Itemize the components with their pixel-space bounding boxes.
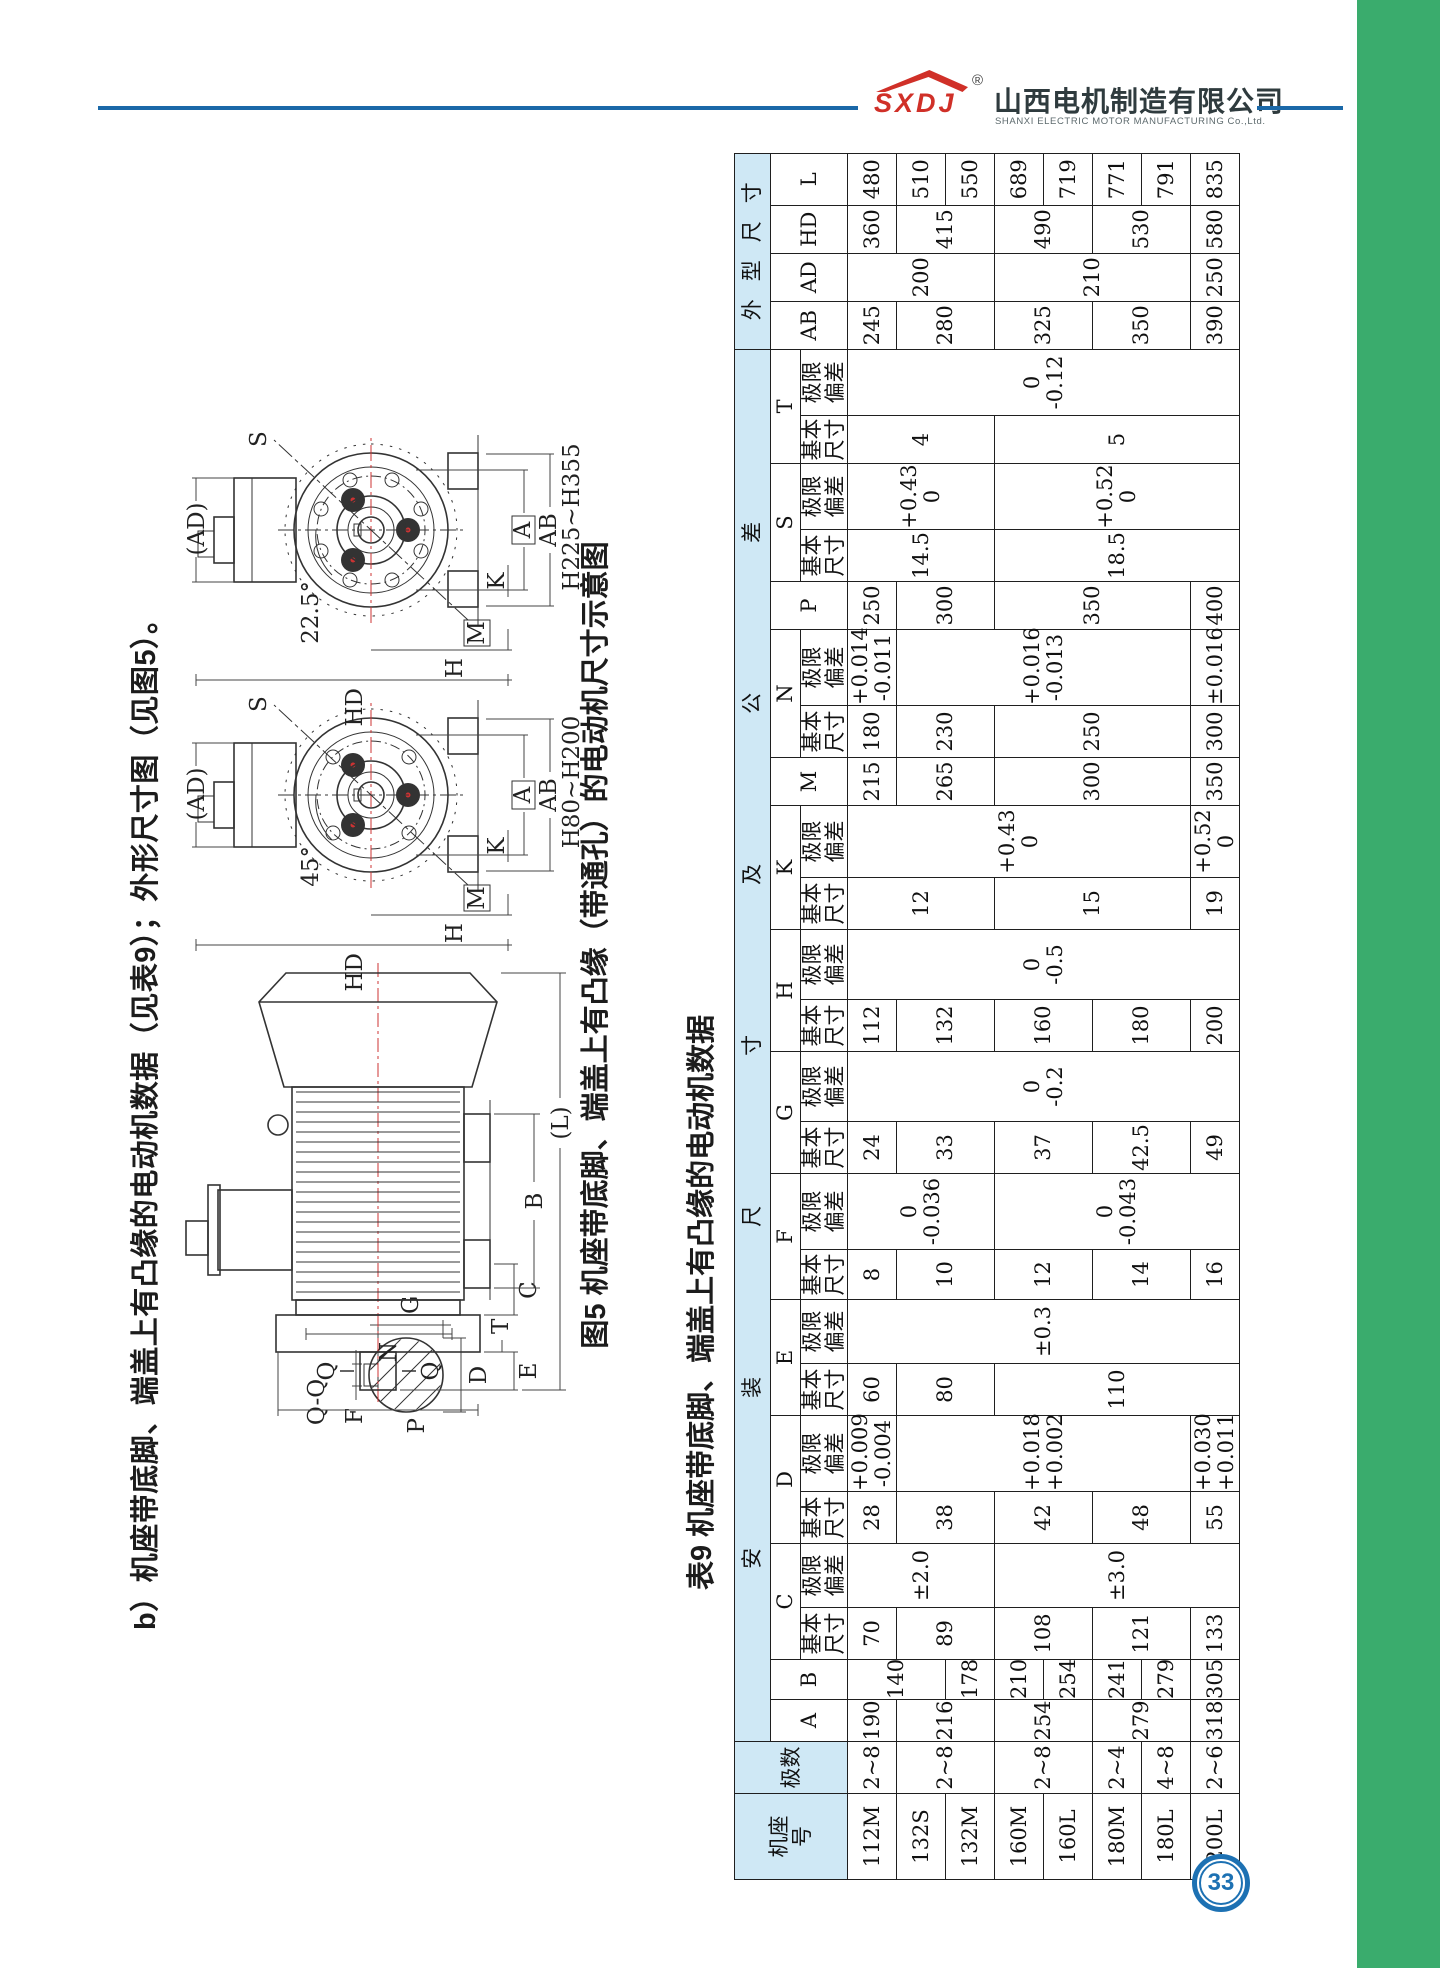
table-cell: +0.43 0 <box>848 464 995 530</box>
table-cell: 2~8 <box>995 1742 1093 1794</box>
header-rule-left <box>98 106 858 110</box>
table-cell: 160L <box>1044 1794 1093 1880</box>
table-cell: 2~6 <box>1191 1742 1240 1794</box>
table-cell: 250 <box>848 582 897 630</box>
table-cell: 160 <box>995 1000 1093 1052</box>
table-cell: 0 -0.12 <box>848 349 1240 415</box>
table-cell: 0 -0.5 <box>848 930 1240 1000</box>
table-cell: 33 <box>897 1122 995 1174</box>
table-cell: +0.52 0 <box>995 464 1240 530</box>
table-cell: 480 <box>848 153 897 205</box>
table-cell: 121 <box>1093 1608 1191 1660</box>
section-mark-q2: Q <box>418 1362 444 1381</box>
table-cell: 15 <box>995 878 1191 930</box>
table-header-cell: E <box>771 1300 801 1416</box>
end-view-large: (AD) S M 22.5° K H HD A AB H225~H355 <box>184 431 581 726</box>
table-header-cell: HD <box>771 205 848 253</box>
motor-side-view: Q Q N P E T C B (L) <box>186 960 574 1433</box>
table-cell: 350 <box>1093 301 1191 349</box>
table-cell: 42.5 <box>1093 1122 1191 1174</box>
table-header-cell: L <box>771 153 848 205</box>
dim-label-m: M <box>464 621 490 645</box>
table-cell: +0.52 0 <box>1191 806 1240 878</box>
page-number-badge: 33 <box>1192 1854 1250 1912</box>
table-cell: 550 <box>946 153 995 205</box>
angle-label-small: 45° <box>298 846 324 887</box>
table-cell: ±0.3 <box>848 1300 1240 1364</box>
dim-label-a: A <box>510 786 536 804</box>
table-header-cell: 基本 尺寸 <box>801 1608 848 1660</box>
table-cell: 0 -0.2 <box>848 1052 1240 1122</box>
end-view-small: (AD) S M 45° K H HD A AB H80~H200 <box>184 696 581 991</box>
table-row: 112M2~819014070±2.028+0.009 -0.00460±0.3… <box>848 153 897 1879</box>
table-cell: 8 <box>848 1250 897 1300</box>
table-cell: 300 <box>1191 706 1240 758</box>
table-header-cell: F <box>771 1174 801 1300</box>
table-cell: 530 <box>1093 205 1191 253</box>
table-header-cell: N <box>771 630 801 758</box>
table-cell: 89 <box>897 1608 995 1660</box>
table-header-cell: B <box>771 1660 848 1700</box>
table-cell: 160M <box>995 1794 1044 1880</box>
table-cell: 5 <box>995 416 1240 464</box>
table-header-cell: 极限 偏差 <box>801 1416 848 1492</box>
table-cell: 132M <box>946 1794 995 1880</box>
dim-label-hd: HD <box>342 953 368 992</box>
table-cell: 140 <box>848 1660 946 1700</box>
table-cell: 325 <box>995 301 1093 349</box>
table-cell: 279 <box>1142 1660 1191 1700</box>
table-cell: 791 <box>1142 153 1191 205</box>
table-cell: +0.016 -0.013 <box>897 630 1191 706</box>
table-row: 机座 号极数安装尺寸及公差外型尺寸 <box>735 153 771 1879</box>
table-row: ABCDEFGHKMNPSTABADHDL <box>771 153 801 1879</box>
table-cell: 350 <box>995 582 1191 630</box>
table-cell: 280 <box>897 301 995 349</box>
qq-title: Q-Q <box>304 1379 330 1425</box>
table-cell: 112 <box>848 1000 897 1052</box>
table-header-cell: 安装尺寸及公差 <box>735 349 771 1741</box>
dim-label-s: S <box>246 431 272 447</box>
table-cell: 250 <box>1191 253 1240 301</box>
table-cell: 200 <box>848 253 995 301</box>
table-cell: 241 <box>1093 1660 1142 1700</box>
green-side-bar <box>1357 0 1440 1968</box>
table-cell: 70 <box>848 1608 897 1660</box>
table-header-cell: 极限 偏差 <box>801 1300 848 1364</box>
company-name-en: SHANXI ELECTRIC MOTOR MANUFACTURING Co.,… <box>995 116 1266 127</box>
table-header-cell: 基本 尺寸 <box>801 878 848 930</box>
dim-label-b: B <box>522 1193 548 1210</box>
spec-table: 机座 号极数安装尺寸及公差外型尺寸ABCDEFGHKMNPSTABADHDL基本… <box>734 153 1240 1880</box>
table-cell: 28 <box>848 1492 897 1544</box>
table-cell: 80 <box>897 1364 995 1416</box>
table-header-cell: 极限 偏差 <box>801 930 848 1000</box>
table-cell: 2~4 <box>1093 1742 1142 1794</box>
dim-label-n: N <box>376 1342 402 1362</box>
table-cell: +0.009 -0.004 <box>848 1416 897 1492</box>
table-cell: 400 <box>1191 582 1240 630</box>
spec-table-head: 机座 号极数安装尺寸及公差外型尺寸ABCDEFGHKMNPSTABADHDL基本… <box>735 153 848 1879</box>
table-cell: 4~8 <box>1142 1742 1191 1794</box>
table-header-cell: 极限 偏差 <box>801 464 848 530</box>
table-cell: 835 <box>1191 153 1240 205</box>
table-cell: 490 <box>995 205 1093 253</box>
table-header-cell: 外型尺寸 <box>735 153 771 349</box>
dim-label-a: A <box>510 521 536 539</box>
dim-label-g: G <box>398 1296 424 1314</box>
dim-label-s: S <box>246 696 272 712</box>
table-header-cell: 基本 尺寸 <box>801 1250 848 1300</box>
table-header-cell: AB <box>771 301 848 349</box>
table-header-cell: 极限 偏差 <box>801 1174 848 1250</box>
table-cell: 49 <box>1191 1122 1240 1174</box>
table-cell: 350 <box>1191 758 1240 806</box>
table-cell: 19 <box>1191 878 1240 930</box>
table-cell: 210 <box>995 253 1191 301</box>
table-cell: ±0.016 <box>1191 630 1240 706</box>
table-cell: 38 <box>897 1492 995 1544</box>
table-header-cell: C <box>771 1544 801 1660</box>
table-header-cell: K <box>771 806 801 930</box>
table-cell: 254 <box>995 1700 1093 1742</box>
table-header-cell: G <box>771 1052 801 1174</box>
table-cell: 37 <box>995 1122 1093 1174</box>
company-logo: SXDJ ® <box>872 62 992 118</box>
table-cell: 112M <box>848 1794 897 1880</box>
table-header-cell: 极限 偏差 <box>801 630 848 706</box>
motor-dimension-figure: Q-Q F G D Q Q <box>156 290 581 1460</box>
table-cell: 133 <box>1191 1608 1240 1660</box>
dim-label-k: K <box>484 837 510 855</box>
table-cell: 132 <box>897 1000 995 1052</box>
table-cell: 132S <box>897 1794 946 1880</box>
table-cell: 510 <box>897 153 946 205</box>
table-cell: 42 <box>995 1492 1093 1544</box>
table-cell: 719 <box>1044 153 1093 205</box>
section-mark-q1: Q <box>314 1362 340 1381</box>
table-header-cell: H <box>771 930 801 1052</box>
table-cell: 12 <box>848 878 995 930</box>
table-header-cell: S <box>771 464 801 582</box>
table-cell: 279 <box>1093 1700 1191 1742</box>
dim-label-d: D <box>466 1366 492 1384</box>
table-cell: 180 <box>848 706 897 758</box>
table-header-cell: 机座 号 <box>735 1794 848 1880</box>
table-cell: ±2.0 <box>848 1544 995 1608</box>
table-cell: 10 <box>897 1250 995 1300</box>
spec-table-body: 112M2~819014070±2.028+0.009 -0.00460±0.3… <box>848 153 1240 1879</box>
table-header-cell: A <box>771 1700 848 1742</box>
table-header-cell: 极数 <box>735 1742 848 1794</box>
table-header-cell: 基本 尺寸 <box>801 1122 848 1174</box>
table-header-cell: 极限 偏差 <box>801 1052 848 1122</box>
table-cell: 415 <box>897 205 995 253</box>
rotated-content: b）机座带底脚、端盖上有凸缘的电动机数据（见表9）；外形尺寸图（见图5）。 Q-… <box>120 140 1320 1880</box>
table-cell: +0.018 +0.002 <box>897 1416 1191 1492</box>
table-header-cell: 基本 尺寸 <box>801 530 848 582</box>
table-cell: 180 <box>1093 1000 1191 1052</box>
header-rule-right <box>1257 106 1343 110</box>
table-cell: 178 <box>946 1660 995 1700</box>
dim-label-h: H <box>442 658 468 678</box>
table-cell: 300 <box>995 758 1191 806</box>
table-cell: 318 <box>1191 1700 1240 1742</box>
table-cell: 215 <box>848 758 897 806</box>
dim-label-ad: (AD) <box>184 503 210 556</box>
registered-mark: ® <box>972 72 983 89</box>
table-cell: ±3.0 <box>995 1544 1240 1608</box>
table-cell: 14 <box>1093 1250 1191 1300</box>
page-number: 33 <box>1208 1869 1235 1897</box>
table-row: 基本 尺寸极限 偏差基本 尺寸极限 偏差基本 尺寸极限 偏差基本 尺寸极限 偏差… <box>801 153 848 1879</box>
table-cell: 216 <box>897 1700 995 1742</box>
table-cell: 360 <box>848 205 897 253</box>
page-number-ring: 33 <box>1199 1861 1243 1905</box>
table-cell: 250 <box>995 706 1191 758</box>
table-cell: 2~8 <box>897 1742 995 1794</box>
table-cell: 689 <box>995 153 1044 205</box>
table-header-cell: 极限 偏差 <box>801 349 848 415</box>
table-cell: 245 <box>848 301 897 349</box>
table-cell: 580 <box>1191 205 1240 253</box>
company-name: 山西电机制造有限公司 <box>994 80 1284 120</box>
dim-label-k: K <box>484 572 510 590</box>
table-cell: 16 <box>1191 1250 1240 1300</box>
dim-label-l: (L) <box>548 1106 574 1139</box>
table-cell: 2~8 <box>848 1742 897 1794</box>
table-header-cell: M <box>771 758 848 806</box>
logo-text: SXDJ <box>874 88 957 119</box>
table-title: 表9 机座带底脚、端盖上有凸缘的电动机数据 <box>678 1015 720 1590</box>
table-header-cell: T <box>771 349 801 463</box>
table-header-cell: AD <box>771 253 848 301</box>
table-header-cell: 基本 尺寸 <box>801 1492 848 1544</box>
table-cell: 55 <box>1191 1492 1240 1544</box>
table-cell: 390 <box>1191 301 1240 349</box>
dim-label-p: P <box>404 1418 430 1433</box>
table-cell: +0.43 0 <box>848 806 1191 878</box>
table-cell: 48 <box>1093 1492 1191 1544</box>
dim-label-hd: HD <box>342 688 368 727</box>
table-cell: 230 <box>897 706 995 758</box>
table-cell: 0 -0.036 <box>848 1174 995 1250</box>
table-cell: 24 <box>848 1122 897 1174</box>
dim-label-e: E <box>516 1363 542 1380</box>
dim-label-h: H <box>442 923 468 943</box>
table-cell: 180L <box>1142 1794 1191 1880</box>
table-cell: 12 <box>995 1250 1093 1300</box>
table-cell: 180M <box>1093 1794 1142 1880</box>
figure-caption: 图5 机座带底脚、端盖上有凸缘（带通孔）的电动机尺寸示意图 <box>572 440 614 1450</box>
table-cell: 190 <box>848 1700 897 1742</box>
table-header-cell: 基本 尺寸 <box>801 1364 848 1416</box>
table-header-cell: 基本 尺寸 <box>801 416 848 464</box>
dim-label-m: M <box>464 886 490 910</box>
table-header-cell: 极限 偏差 <box>801 806 848 878</box>
table-header-cell: D <box>771 1416 801 1544</box>
table-cell: 265 <box>897 758 995 806</box>
table-cell: 771 <box>1093 153 1142 205</box>
table-cell: 305 <box>1191 1660 1240 1700</box>
table-header-cell: 极限 偏差 <box>801 1544 848 1608</box>
table-cell: 210 <box>995 1660 1044 1700</box>
table-cell: 200 <box>1191 1000 1240 1052</box>
table-header-cell: 基本 尺寸 <box>801 1000 848 1052</box>
table-cell: 18.5 <box>995 530 1240 582</box>
dim-label-c: C <box>516 1281 542 1299</box>
table-cell: 60 <box>848 1364 897 1416</box>
table-header-cell: 基本 尺寸 <box>801 706 848 758</box>
table-cell: 254 <box>1044 1660 1093 1700</box>
table-cell: 110 <box>995 1364 1240 1416</box>
angle-label-large: 22.5° <box>298 581 324 644</box>
table-cell: 4 <box>848 416 995 464</box>
dim-label-ad: (AD) <box>184 768 210 821</box>
table-header-cell: P <box>771 582 848 630</box>
table-cell: 0 -0.043 <box>995 1174 1240 1250</box>
table-cell: +0.030 +0.011 <box>1191 1416 1240 1492</box>
dim-label-t: T <box>488 1318 514 1334</box>
table-cell: +0.014 -0.011 <box>848 630 897 706</box>
table-cell: 108 <box>995 1608 1093 1660</box>
table-cell: 300 <box>897 582 995 630</box>
table-cell: 14.5 <box>848 530 995 582</box>
